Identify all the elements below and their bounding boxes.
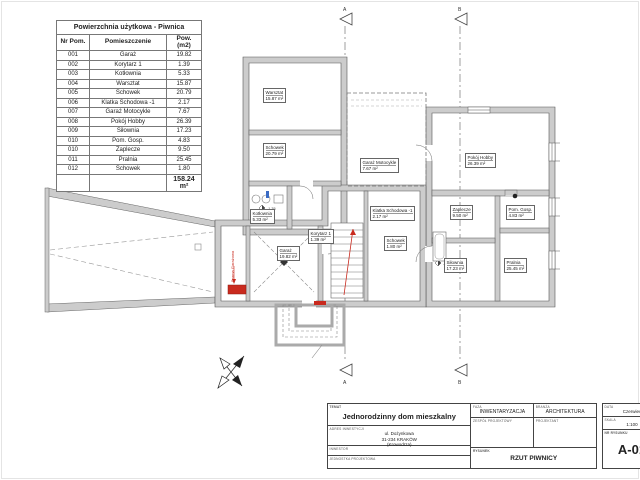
col-header-nr: Nr Pom. [57, 35, 90, 51]
branza-caption: BRANŻA [536, 405, 550, 409]
gas-valve-marker [266, 191, 269, 198]
table-row: 003Kotłownia5.33 [57, 70, 202, 80]
table-total-row: 158.24 m² [57, 174, 202, 191]
bathtub [433, 232, 446, 261]
room-label-pralnia: Pralnia25.45 m² [504, 258, 527, 273]
table-row: 004Warsztat15.87 [57, 79, 202, 89]
projektant-caption: PROJEKTANT [536, 419, 559, 423]
room-label-schowek-005: Schowek20.79 m² [263, 143, 286, 158]
room-label-warsztat: Warsztat15.87 m² [263, 88, 286, 103]
table-row: 009Siłownia17.23 [57, 127, 202, 137]
date-value: Czerwiec [623, 409, 640, 414]
room-label-schowek-012: Schowek1.80 m² [384, 236, 407, 251]
area-table-title: Powierzchnia użytkowa - Piwnica [57, 21, 202, 35]
section-letter-b-bottom: B [458, 380, 462, 386]
title-block-faza-cell: FAZA INWENTARYZACJA [471, 404, 534, 417]
north-arrow-icon [218, 356, 244, 388]
jednostka-caption: JEDNOSTKA PROJEKTOWA [330, 457, 376, 461]
room-label-garaz: Garaż19.82 m² [277, 246, 300, 261]
table-row: 001Garaż19.82 [57, 51, 202, 61]
table-row: 010Pom. Gosp.4.83 [57, 136, 202, 146]
staircase [331, 223, 363, 298]
col-header-area: Pow. (m2) [167, 35, 202, 51]
room-label-garaz-motocykle: Garaż Motocykle7.67 m² [360, 158, 399, 173]
data-caption: DATA [605, 405, 614, 409]
adres-caption: ADRES INWESTYCJI [330, 427, 364, 431]
skala-caption: SKALA [605, 418, 616, 422]
project-title: Jednorodzinny dom mieszkalny [343, 412, 456, 421]
col-header-name: Pomieszczenie [90, 35, 167, 51]
title-block-data-cell: DATA Czerwiec [603, 404, 640, 417]
column-marker [513, 194, 518, 199]
title-block-temat-cell: TEMAT Jednorodzinny dom mieszkalny [328, 404, 470, 426]
room-label-pokoj-hobby: Pokój Hobby26.39 m² [465, 153, 496, 168]
table-row: 011Pralnia25.45 [57, 155, 202, 165]
temat-caption: TEMAT [330, 405, 342, 409]
room-label-silownia: Siłownia17.23 m² [444, 258, 467, 273]
title-block: TEMAT Jednorodzinny dom mieszkalny ADRES… [327, 403, 640, 469]
room-label-zaplecze: Zaplecze9.50 m² [450, 205, 473, 220]
faza-value: INWENTARYZACJA [480, 409, 525, 415]
room-label-korytarz: Korytarz 11.39 m² [308, 229, 334, 244]
driveway-ramp [45, 188, 215, 312]
light-well [276, 301, 344, 358]
room-label-kotlownia: Kotłownia5.33 m² [250, 209, 275, 224]
total-area: 158.24 m² [167, 174, 202, 191]
rysunek-caption: RYSUNEK [473, 449, 490, 453]
title-block-number-cell: NR RYSUNKU A-01 [603, 430, 640, 468]
drawing-number: A-01 [618, 442, 640, 457]
garage-door-label: Brama Garażowa [230, 251, 235, 282]
drawing-name: RZUT PIWNICY [510, 455, 557, 462]
title-block-jednostka-cell: JEDNOSTKA PROJEKTOWA [328, 456, 470, 468]
table-row: 006Klatka Schodowa -12.17 [57, 98, 202, 108]
scale-value: 1:100 [626, 422, 637, 427]
section-letter-a-bottom: A [343, 380, 347, 386]
title-block-inwestor-cell: INWESTOR [328, 446, 470, 456]
title-block-branza-cell: BRANŻA ARCHITEKTURA [534, 404, 596, 417]
section-letter-a-top: A [343, 7, 347, 13]
table-row: 002Korytarz 11.39 [57, 60, 202, 70]
table-row: 005Schowek20.79 [57, 89, 202, 99]
drawing-sheet: A B A B [0, 0, 640, 480]
title-block-adres-cell: ADRES INWESTYCJI ul. Dożynkowa 31-234 KR… [328, 426, 470, 446]
area-table: Powierzchnia użytkowa - Piwnica Nr Pom. … [56, 20, 202, 192]
title-block-zespol-cell: ZESPÓŁ PROJEKTOWY [471, 418, 534, 447]
table-row: 012Schowek1.80 [57, 165, 202, 175]
table-row: 008Pokój Hobby26.39 [57, 117, 202, 127]
numer-caption: NR RYSUNKU [605, 431, 628, 435]
room-label-pom-gosp: Pom. Gosp.4.83 m² [506, 205, 535, 220]
faza-caption: FAZA [473, 405, 482, 409]
zespol-caption: ZESPÓŁ PROJEKTOWY [473, 419, 512, 423]
exterior-door-marker [314, 301, 326, 305]
title-block-rysunek-cell: RYSUNEK RZUT PIWNICY [471, 448, 596, 468]
table-row: 007Garaż Motocykle7.67 [57, 108, 202, 118]
room-label-klatka: Klatka Schodowa -12.17 m² [370, 206, 415, 221]
branza-value: ARCHITEKTURA [546, 409, 585, 415]
title-block-skala-cell: SKALA 1:100 [603, 417, 640, 430]
section-letter-b-top: B [458, 7, 462, 13]
title-block-projektant-cell: PROJEKTANT [534, 418, 596, 447]
table-row: 010Zaplecze9.50 [57, 146, 202, 156]
inwestor-caption: INWESTOR [330, 447, 349, 451]
windows [468, 107, 560, 269]
